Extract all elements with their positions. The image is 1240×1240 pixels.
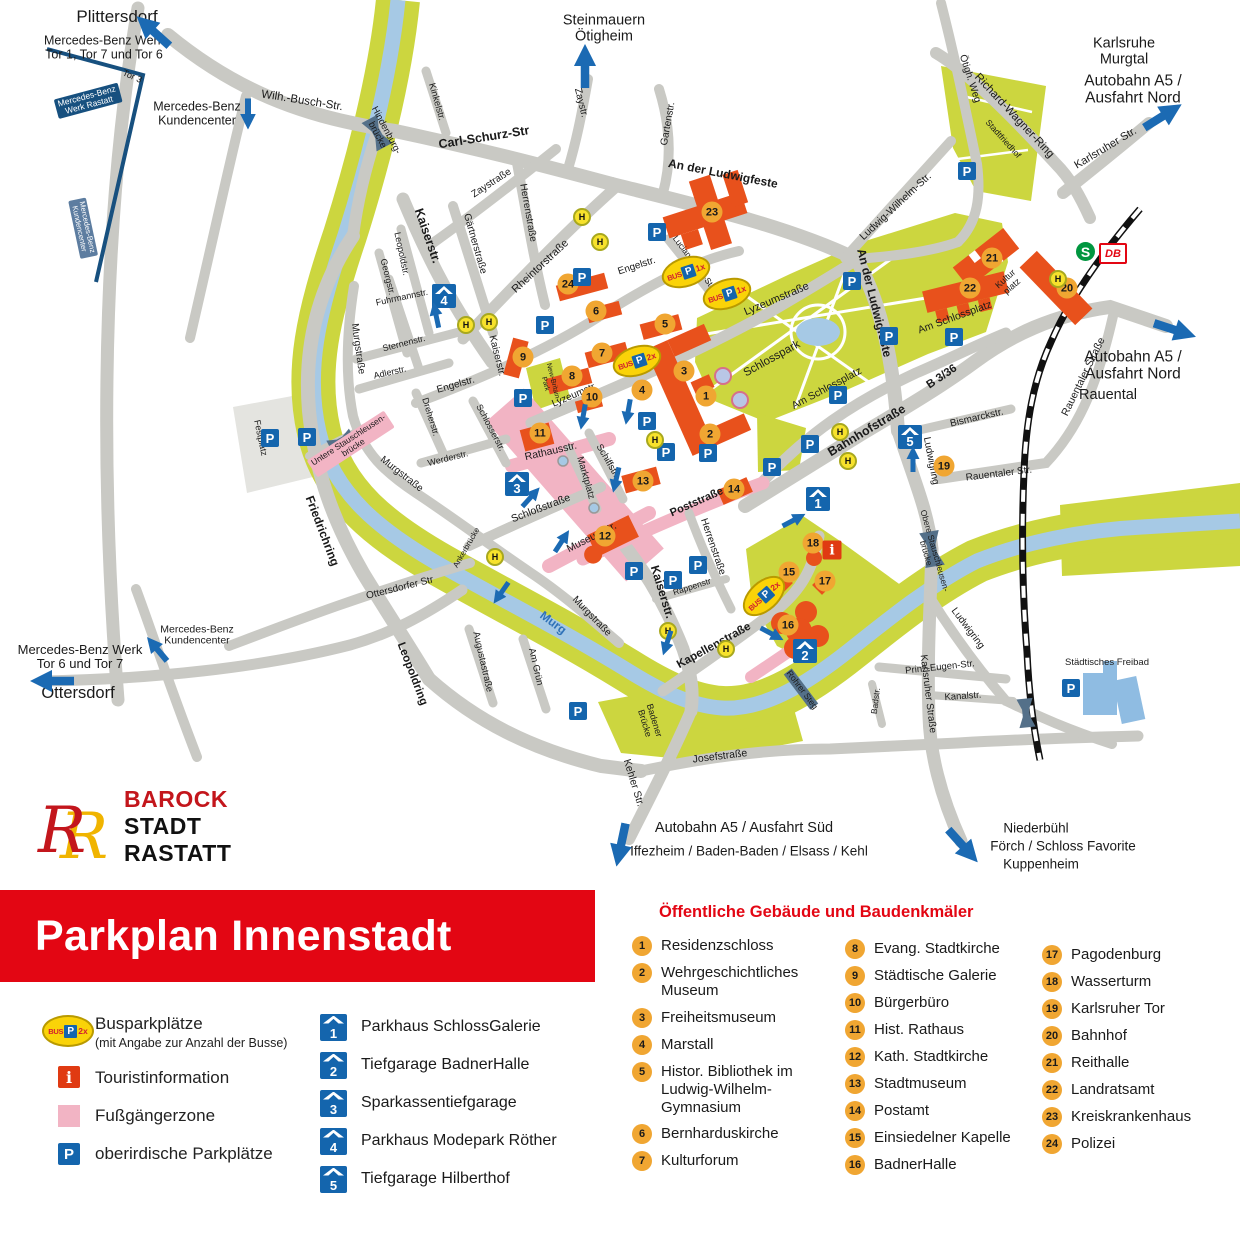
building-number-badge: 8 — [845, 939, 865, 959]
building-label: Reithalle — [1071, 1053, 1129, 1072]
buildings-column-1: 1Residenzschloss2Wehrgeschichtliches Mus… — [632, 936, 848, 1178]
building-legend-item: 17Pagodenburg — [1042, 945, 1238, 965]
building-legend-item: 21Reithalle — [1042, 1053, 1238, 1073]
building-legend-item: 19Karlsruher Tor — [1042, 999, 1238, 1019]
building-number-badge: 19 — [1042, 999, 1062, 1019]
building-label: Kath. Stadtkirche — [874, 1047, 988, 1066]
logo-line-stadt: STADT — [124, 813, 231, 840]
building-number-badge: 7 — [632, 1151, 652, 1171]
building-number-badge: 17 — [1042, 945, 1062, 965]
building-number-badge: 21 — [1042, 1053, 1062, 1073]
garage-legend: 1Parkhaus SchlossGalerie2Tiefgarage Badn… — [320, 1008, 557, 1198]
building-label: Wehrgeschichtliches Museum — [661, 963, 848, 1001]
building-legend-item: 24Polizei — [1042, 1134, 1238, 1154]
building-legend-item: 23Kreiskrankenhaus — [1042, 1107, 1238, 1127]
building-legend-item: 4Marstall — [632, 1035, 848, 1055]
building-number-badge: 10 — [845, 993, 865, 1013]
building-number-badge: 13 — [845, 1074, 865, 1094]
building-legend-item: 11Hist. Rathaus — [845, 1020, 1045, 1040]
building-legend-item: 8Evang. Stadtkirche — [845, 939, 1045, 959]
garage-icon: 1 — [320, 1014, 347, 1041]
building-label: Kreiskrankenhaus — [1071, 1107, 1191, 1126]
building-number-badge: 6 — [632, 1124, 652, 1144]
building-label: Freiheitsmuseum — [661, 1008, 776, 1027]
building-number-badge: 2 — [632, 963, 652, 983]
garage-legend-item: 4Parkhaus Modepark Röther — [320, 1122, 557, 1160]
bus-text: BUS — [48, 1027, 63, 1036]
building-legend-item: 1Residenzschloss — [632, 936, 848, 956]
p-text: P — [64, 1025, 77, 1038]
building-label: Histor. Bibliothek im Ludwig-Wilhelm-Gym… — [661, 1062, 848, 1118]
building-label: Bahnhof — [1071, 1026, 1127, 1045]
building-legend-item: 12Kath. Stadtkirche — [845, 1047, 1045, 1067]
page-title: Parkplan Innenstadt — [35, 912, 452, 961]
garage-label: Tiefgarage Hilberthof — [361, 1170, 510, 1188]
building-number-badge: 20 — [1042, 1026, 1062, 1046]
building-legend-item: 15Einsiedelner Kapelle — [845, 1128, 1045, 1148]
building-number-badge: 16 — [845, 1155, 865, 1175]
legend-bus-sublabel: (mit Angabe zur Anzahl der Busse) — [95, 1036, 287, 1050]
barock-r-emblem-icon: R R — [36, 786, 116, 872]
garage-icon: 5 — [320, 1166, 347, 1193]
garage-icon: 4 — [320, 1128, 347, 1155]
wasserturm-building — [806, 550, 822, 566]
garage-label: Tiefgarage BadnerHalle — [361, 1056, 529, 1074]
building-number-badge: 3 — [632, 1008, 652, 1028]
building-legend-item: 10Bürgerbüro — [845, 993, 1045, 1013]
building-label: BadnerHalle — [874, 1155, 957, 1174]
garage-legend-item: 5Tiefgarage Hilberthof — [320, 1160, 557, 1198]
building-legend-item: 9Städtische Galerie — [845, 966, 1045, 986]
building-number-badge: 15 — [845, 1128, 865, 1148]
building-number-badge: 4 — [632, 1035, 652, 1055]
building-label: Landratsamt — [1071, 1080, 1154, 1099]
building-number-badge: 18 — [1042, 972, 1062, 992]
building-label: Kulturforum — [661, 1151, 739, 1170]
building-legend-item: 3Freiheitsmuseum — [632, 1008, 848, 1028]
building-legend-item: 22Landratsamt — [1042, 1080, 1238, 1100]
garage-label: Parkhaus Modepark Röther — [361, 1132, 557, 1150]
garage-legend-item: 3Sparkassentiefgarage — [320, 1084, 557, 1122]
building-legend-item: 14Postamt — [845, 1101, 1045, 1121]
building-legend-item: 6Bernharduskirche — [632, 1124, 848, 1144]
garage-legend-item: 2Tiefgarage BadnerHalle — [320, 1046, 557, 1084]
railway — [1023, 209, 1140, 760]
building-label: Evang. Stadtkirche — [874, 939, 1000, 958]
building-legend-item: 18Wasserturm — [1042, 972, 1238, 992]
buildings-column-3: 17Pagodenburg18Wasserturm19Karlsruher To… — [1042, 945, 1238, 1161]
legend-parking-label: oberirdische Parkplätze — [95, 1144, 273, 1164]
building-number-badge: 1 — [632, 936, 652, 956]
building-number-badge: 22 — [1042, 1080, 1062, 1100]
title-banner: Parkplan Innenstadt — [0, 890, 595, 982]
building-number-badge: 5 — [632, 1062, 652, 1082]
count-text: 2x — [78, 1026, 87, 1036]
buildings-column-2: 8Evang. Stadtkirche9Städtische Galerie10… — [845, 939, 1045, 1182]
building-label: Karlsruher Tor — [1071, 999, 1165, 1018]
schlosspark-pond — [796, 318, 840, 346]
legend-tourist-label: Touristinformation — [95, 1068, 229, 1088]
building-label: Marstall — [661, 1035, 714, 1054]
garage-legend-item: 1Parkhaus SchlossGalerie — [320, 1008, 557, 1046]
building-label: Hist. Rathaus — [874, 1020, 964, 1039]
building-label: Residenzschloss — [661, 936, 774, 955]
garage-icon: 3 — [320, 1090, 347, 1117]
building-legend-item: 13Stadtmuseum — [845, 1074, 1045, 1094]
building-label: Postamt — [874, 1101, 929, 1120]
building-label: Stadtmuseum — [874, 1074, 967, 1093]
city-logo: R R BAROCK STADT RASTATT — [36, 786, 231, 872]
building-label: Wasserturm — [1071, 972, 1151, 991]
building-label: Polizei — [1071, 1134, 1115, 1153]
building-legend-item: 7Kulturforum — [632, 1151, 848, 1171]
garage-icon: 2 — [320, 1052, 347, 1079]
surface-parking-legend-icon: P — [58, 1143, 80, 1165]
tourist-info-legend-icon: i — [58, 1066, 80, 1088]
legend-zone-label: Fußgängerzone — [95, 1106, 215, 1126]
building-number-badge: 14 — [845, 1101, 865, 1121]
building-label: Pagodenburg — [1071, 945, 1161, 964]
building-number-badge: 9 — [845, 966, 865, 986]
building-label: Bernharduskirche — [661, 1124, 779, 1143]
building-legend-item: 20Bahnhof — [1042, 1026, 1238, 1046]
garage-label: Parkhaus SchlossGalerie — [361, 1018, 541, 1036]
logo-line-rastatt: RASTATT — [124, 840, 231, 867]
building-number-badge: 12 — [845, 1047, 865, 1067]
building-label: Städtische Galerie — [874, 966, 997, 985]
svg-text:R: R — [37, 794, 86, 868]
legend-bus-label: Busparkplätze — [95, 1014, 203, 1034]
building-label: Bürgerbüro — [874, 993, 949, 1012]
pedestrian-zone-legend-icon — [58, 1105, 80, 1127]
garage-label: Sparkassentiefgarage — [361, 1094, 517, 1112]
building-number-badge: 23 — [1042, 1107, 1062, 1127]
building-number-badge: 11 — [845, 1020, 865, 1040]
building-legend-item: 5Histor. Bibliothek im Ludwig-Wilhelm-Gy… — [632, 1062, 848, 1118]
building-legend-item: 2Wehrgeschichtliches Museum — [632, 963, 848, 1001]
building-number-badge: 24 — [1042, 1134, 1062, 1154]
building-label: Einsiedelner Kapelle — [874, 1128, 1011, 1147]
logo-line-barock: BAROCK — [124, 786, 231, 813]
freibad-pools — [1083, 661, 1145, 724]
bus-parking-legend-icon: BUS P 2x — [42, 1015, 94, 1047]
buildings-legend-title: Öffentliche Gebäude und Baudenkmäler — [659, 903, 973, 922]
building-legend-item: 16BadnerHalle — [845, 1155, 1045, 1175]
